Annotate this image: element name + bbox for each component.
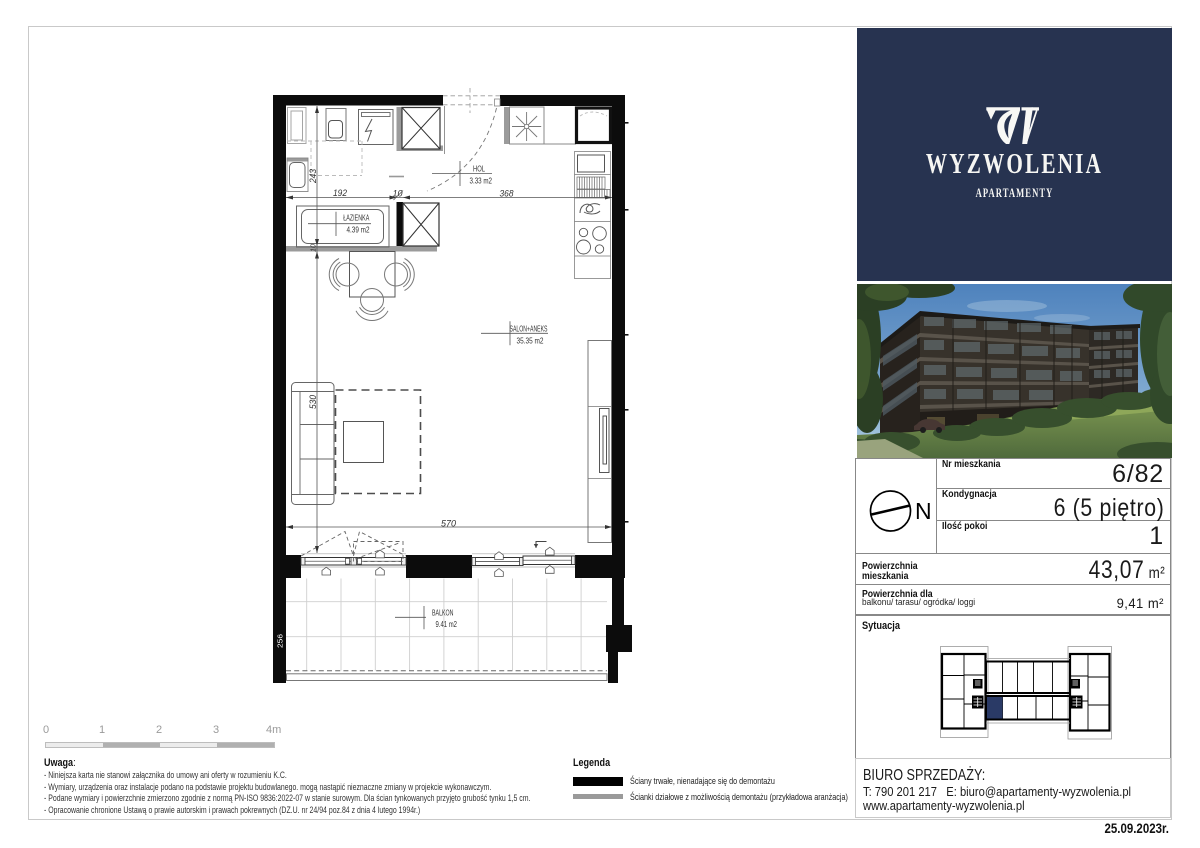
svg-text:35.35 m2: 35.35 m2 <box>517 336 544 346</box>
svg-text:BALKON: BALKON <box>432 608 454 618</box>
svg-text:3.33 m2: 3.33 m2 <box>470 176 493 186</box>
svg-text:570: 570 <box>441 519 456 529</box>
svg-text:256: 256 <box>276 634 285 648</box>
svg-text:9.41 m2: 9.41 m2 <box>436 619 458 629</box>
svg-text:HOL: HOL <box>473 164 485 174</box>
svg-text:368: 368 <box>500 189 514 199</box>
svg-text:10: 10 <box>393 189 403 199</box>
svg-text:192: 192 <box>333 188 347 198</box>
svg-text:SALON+ANEKS: SALON+ANEKS <box>510 324 548 334</box>
svg-text:N: N <box>915 498 931 524</box>
svg-text:243: 243 <box>308 169 318 184</box>
svg-text:4.39 m2: 4.39 m2 <box>347 225 370 235</box>
svg-text:ŁAZIENKA: ŁAZIENKA <box>343 213 369 223</box>
svg-text:530: 530 <box>308 395 318 409</box>
svg-text:10: 10 <box>311 244 318 252</box>
